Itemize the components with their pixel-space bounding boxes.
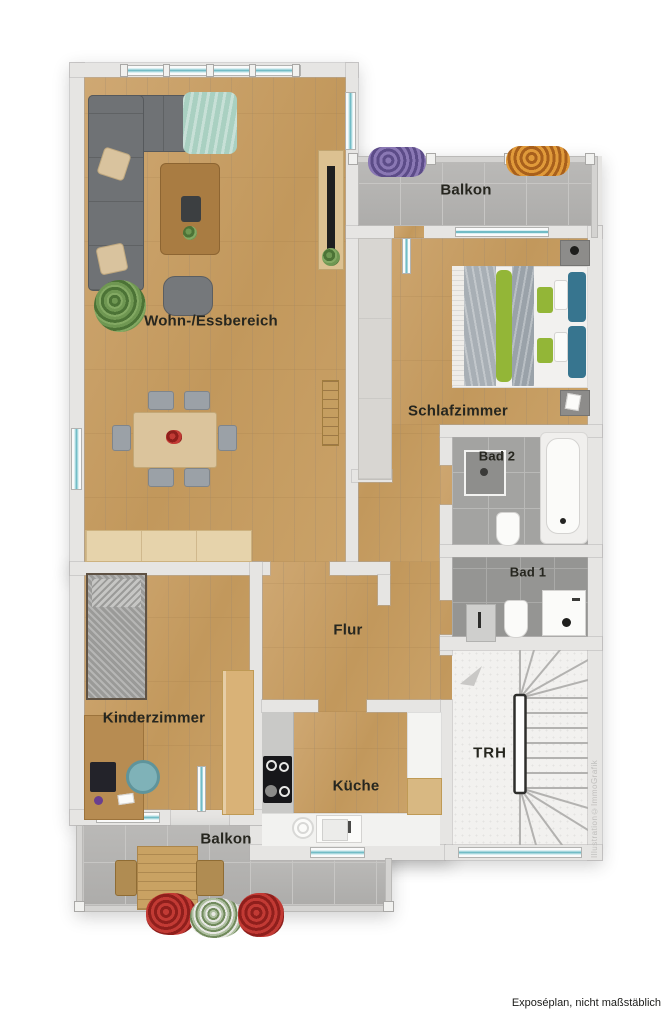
bed-blanket — [512, 266, 534, 386]
window-stairwell — [458, 847, 582, 858]
table-tray — [181, 196, 201, 222]
pillow-green — [537, 287, 553, 313]
kids-pillow — [92, 579, 141, 607]
pillow-teal — [568, 272, 586, 322]
wall — [367, 700, 440, 712]
railing-post — [585, 153, 595, 165]
room-label-balcony-bottom: Balkon — [200, 831, 251, 848]
shower-handle — [572, 598, 580, 601]
shower-drain — [480, 468, 488, 476]
plant — [94, 280, 146, 332]
window-bedroom-balcony — [455, 227, 549, 237]
sink-basin — [322, 819, 348, 841]
window-post — [249, 64, 256, 77]
room-label-kids: Kinderzimmer — [103, 710, 205, 727]
wall-shelf — [322, 380, 339, 446]
desk-lamp — [94, 796, 103, 805]
railing-post — [74, 901, 85, 912]
flower-box-red — [238, 893, 284, 937]
flower-box-orange — [506, 146, 570, 176]
watermark: Illustration©ImmoGrafik — [590, 740, 599, 858]
toilet — [496, 512, 520, 546]
plan-caption: Exposéplan, nicht maßstäblich — [512, 997, 661, 1009]
balcony-door-leaf — [402, 238, 411, 274]
pan — [265, 785, 277, 797]
balcony-door-opening — [394, 226, 424, 238]
dining-chair — [148, 391, 174, 410]
kitchen-wood-floor — [293, 712, 407, 813]
room-label-kitchen: Küche — [333, 778, 380, 795]
table-plant — [183, 226, 197, 240]
tv-screen — [327, 166, 335, 252]
balcony-door-leaf — [197, 766, 206, 812]
flower-box-lavender — [368, 147, 426, 177]
shower-tray — [542, 590, 586, 636]
balcony-bench — [196, 860, 224, 896]
window-post — [206, 64, 214, 77]
wardrobe — [358, 238, 392, 480]
washbasin — [466, 604, 496, 642]
room-label-bath2: Bad 2 — [479, 449, 515, 464]
dining-chair — [184, 391, 210, 410]
sofa-pillow — [95, 242, 128, 275]
burner — [279, 786, 290, 797]
dining-chair — [148, 468, 174, 487]
window-living-right — [345, 92, 356, 150]
stair-direction-arrow — [460, 666, 482, 686]
room-label-bedroom: Schlafzimmer — [408, 403, 508, 420]
dining-chair — [218, 425, 237, 451]
stair-handrail — [515, 695, 526, 793]
railing-post — [426, 153, 436, 165]
room-label-living: Wohn-/Essbereich — [144, 313, 278, 330]
bed-green-throw — [496, 270, 512, 382]
desk-chair — [126, 760, 160, 794]
shower-drain — [562, 618, 571, 627]
wall — [262, 700, 318, 712]
wall — [378, 575, 390, 605]
kitchen-counter-right — [407, 778, 442, 815]
wall — [440, 437, 452, 465]
burner — [266, 760, 277, 771]
pillow-teal — [568, 326, 586, 378]
window-post — [163, 64, 170, 77]
window-living-left — [71, 428, 82, 490]
flower-box-red — [146, 893, 196, 935]
bedside-lamp — [570, 246, 579, 255]
nightstand-papers — [565, 393, 582, 411]
dining-chair — [184, 468, 210, 487]
room-label-bath1: Bad 1 — [510, 565, 546, 580]
railing-post — [348, 153, 358, 165]
room-label-balcony-top: Balkon — [440, 182, 491, 199]
balcony-railing — [76, 825, 83, 912]
bathtub-faucet — [560, 518, 566, 524]
pillow-green — [537, 338, 553, 363]
burner — [279, 762, 289, 772]
dining-chair — [112, 425, 131, 451]
kids-wardrobe — [222, 670, 254, 815]
wall — [440, 545, 602, 557]
table-flowers — [166, 430, 182, 444]
bed-blanket — [464, 266, 496, 386]
flower-box-white — [190, 898, 242, 938]
railing-post — [383, 901, 394, 912]
window-kitchen — [310, 847, 365, 858]
pillow-white — [554, 332, 568, 362]
toilet — [504, 600, 528, 638]
wall — [440, 637, 602, 650]
room-label-hall: Flur — [333, 622, 362, 639]
window-post — [292, 64, 300, 77]
dish-stack — [297, 822, 309, 834]
faucet — [348, 821, 351, 833]
balcony-bench — [115, 860, 137, 896]
armchair — [163, 276, 213, 316]
laptop — [90, 762, 116, 792]
pillow-white — [554, 280, 568, 310]
room-label-stairwell: TRH — [473, 745, 507, 762]
plant — [322, 248, 340, 266]
window-post — [120, 64, 128, 77]
wall — [330, 562, 390, 575]
bed-runner — [452, 266, 464, 386]
fridge-cabinet — [407, 712, 442, 780]
basin-tap — [478, 612, 481, 628]
sideboard — [85, 530, 252, 562]
throw-blanket — [183, 92, 237, 154]
balcony-railing — [591, 156, 598, 238]
floor-plan: Wohn-/Essbereich Balkon Schlafzimmer Bad… — [0, 0, 671, 1024]
